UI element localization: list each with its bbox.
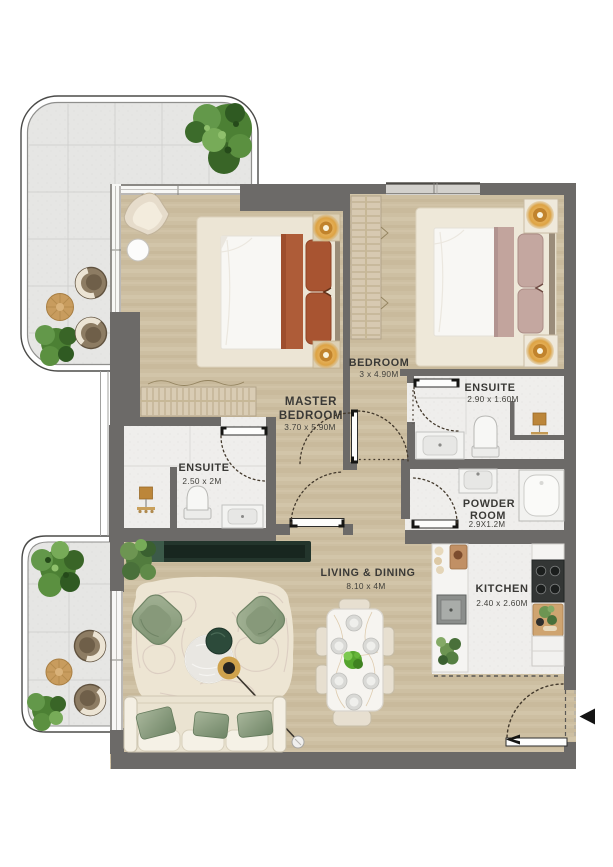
svg-text:ENSUITE: ENSUITE [465,382,516,394]
svg-text:POWDER: POWDER [463,498,515,510]
svg-text:2.9X1.2M: 2.9X1.2M [469,520,506,529]
svg-text:3 x 4.90M: 3 x 4.90M [359,369,398,379]
svg-text:8.10 x 4M: 8.10 x 4M [346,581,385,591]
svg-text:2.90 x 1.60M: 2.90 x 1.60M [467,394,519,404]
svg-text:MASTER: MASTER [285,396,337,408]
svg-text:2.40 x 2.60M: 2.40 x 2.60M [476,598,528,608]
svg-text:BEDROOM: BEDROOM [279,410,343,422]
svg-text:BEDROOM: BEDROOM [349,357,410,369]
svg-text:2.50 x 2M: 2.50 x 2M [182,476,221,486]
svg-text:KITCHEN: KITCHEN [475,583,528,595]
svg-text:ENSUITE: ENSUITE [179,462,230,474]
svg-text:3.70 x 5.90M: 3.70 x 5.90M [284,422,336,432]
svg-text:LIVING & DINING: LIVING & DINING [321,567,416,579]
